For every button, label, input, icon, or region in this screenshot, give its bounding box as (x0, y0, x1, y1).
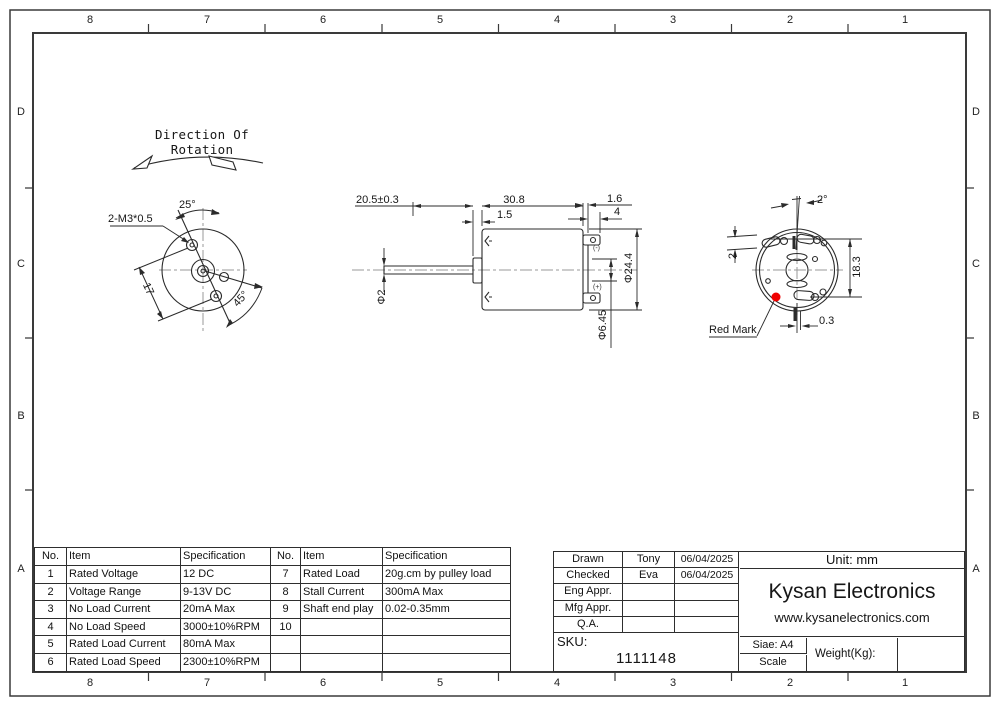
spec-table: No. Item Specification No. Item Specific… (34, 547, 511, 672)
dim-tilt-angle: 2° (817, 194, 828, 206)
spec-cell (301, 636, 383, 654)
approval-date (675, 584, 739, 600)
spec-cell (383, 636, 510, 654)
approval-label: Drawn (554, 552, 623, 568)
spec-cell: 20mA Max (181, 601, 271, 619)
zone-col-bottom-8: 8 (82, 677, 98, 691)
rotation-heading: Direction Of Rotation (124, 127, 280, 157)
zone-row-right-c: C (968, 258, 984, 272)
dim-rear-step: 1.6 (607, 193, 622, 205)
spec-cell: 2 (35, 584, 67, 602)
spec-cell: Shaft end play (301, 601, 383, 619)
dim-shaft-length: 20.5±0.3 (356, 194, 399, 206)
front-outline (162, 210, 262, 323)
rear-view-drawing (709, 196, 862, 337)
spec-cell: 3 (35, 601, 67, 619)
approval-label: Checked (554, 568, 623, 584)
spec-cell: 1 (35, 566, 67, 584)
size-cell: Siae: A4 (740, 638, 807, 654)
spec-cell (271, 636, 301, 654)
spec-cell: 6 (35, 654, 67, 672)
sku-cell: SKU: 1111148 (554, 633, 739, 671)
angle-25-label: 25° (179, 199, 196, 211)
engineering-drawing-sheet: 8 7 6 5 4 3 2 1 8 7 6 5 4 3 2 1 D C B A … (0, 0, 1000, 707)
spec-cell: 12 DC (181, 566, 271, 584)
weight-value-cell (899, 638, 964, 671)
dim-offset: 0.3 (819, 315, 834, 327)
company-cell: Kysan Electronics www.kysanelectronics.c… (740, 569, 964, 637)
spec-cell: 80mA Max (181, 636, 271, 654)
spec-header-spec: Specification (181, 548, 271, 566)
spec-cell: 8 (271, 584, 301, 602)
zone-col-bottom-7: 7 (199, 677, 215, 691)
rear-dimensions (709, 196, 862, 337)
company-name: Kysan Electronics (740, 580, 964, 604)
approval-label: Eng Appr. (554, 584, 623, 600)
title-block-right: Unit: mm Kysan Electronics www.kysanelec… (740, 552, 964, 671)
zone-col-top-6: 6 (315, 14, 331, 28)
weight-cell: Weight(Kg): (808, 638, 898, 671)
spec-cell: 300mA Max (383, 584, 510, 602)
zone-col-top-2: 2 (782, 14, 798, 28)
zone-col-top-4: 4 (549, 14, 565, 28)
zone-row-left-b: B (13, 410, 29, 424)
dim-slot-span: 18.3 (851, 250, 863, 284)
approval-label: Mfg Appr. (554, 601, 623, 617)
spec-cell: No Load Current (67, 601, 181, 619)
approval-name (623, 601, 675, 617)
sku-value: 1111148 (554, 650, 739, 667)
dim-shaft-dia: Φ2 (376, 282, 388, 312)
zone-row-left-d: D (13, 106, 29, 120)
dim-terminal-length: 4 (614, 206, 620, 218)
spec-cell: 4 (35, 619, 67, 637)
spec-cell: 5 (35, 636, 67, 654)
approval-name: Eva (623, 568, 675, 584)
zone-col-top-5: 5 (432, 14, 448, 28)
positive-terminal-label: (+) (593, 284, 602, 291)
spec-cell (301, 654, 383, 672)
dim-front-step: 1.5 (497, 209, 512, 221)
approval-name (623, 617, 675, 633)
zone-row-left-a: A (13, 563, 29, 577)
spec-cell (301, 619, 383, 637)
thread-spec-label: 2-M3*0.5 (108, 213, 153, 225)
zone-row-right-d: D (968, 106, 984, 120)
zone-col-top-1: 1 (897, 14, 913, 28)
spec-cell: 9 (271, 601, 301, 619)
zone-col-top-7: 7 (199, 14, 215, 28)
approval-date (675, 601, 739, 617)
spec-header-no: No. (35, 548, 67, 566)
rotation-arrow (133, 156, 263, 170)
spec-cell: 3000±10%RPM (181, 619, 271, 637)
approval-name (623, 584, 675, 600)
red-mark-label: Red Mark (709, 324, 757, 336)
approval-label: Q.A. (554, 617, 623, 633)
company-website: www.kysanelectronics.com (740, 610, 964, 625)
negative-terminal-label: (-) (593, 245, 600, 252)
dim-slot-width: 2 (727, 246, 739, 266)
unit-cell: Unit: mm (740, 552, 964, 569)
zone-col-bottom-2: 2 (782, 677, 798, 691)
sku-label: SKU: (557, 634, 587, 649)
title-block: Drawn Tony 06/04/2025 Checked Eva 06/04/… (553, 551, 965, 672)
zone-col-top-3: 3 (665, 14, 681, 28)
zone-col-bottom-3: 3 (665, 677, 681, 691)
spec-cell: Rated Load Speed (67, 654, 181, 672)
zone-col-bottom-1: 1 (897, 677, 913, 691)
approval-date (675, 617, 739, 633)
zone-col-top-8: 8 (82, 14, 98, 28)
spec-cell: Stall Current (301, 584, 383, 602)
approval-date: 06/04/2025 (675, 552, 739, 568)
zone-col-bottom-4: 4 (549, 677, 565, 691)
zone-col-bottom-6: 6 (315, 677, 331, 691)
spec-cell (383, 654, 510, 672)
spec-cell: Rated Voltage (67, 566, 181, 584)
spec-cell: Voltage Range (67, 584, 181, 602)
spec-header-spec: Specification (383, 548, 510, 566)
spec-cell: 20g.cm by pulley load (383, 566, 510, 584)
spec-cell: 10 (271, 619, 301, 637)
spec-header-no: No. (271, 548, 301, 566)
spec-cell: 7 (271, 566, 301, 584)
spec-cell (271, 654, 301, 672)
zone-row-left-c: C (13, 258, 29, 272)
dim-body-dia: Φ24.4 (623, 246, 635, 290)
dim-terminal-span: Φ6.45 (597, 303, 609, 347)
spec-header-item: Item (301, 548, 383, 566)
approval-grid: Drawn Tony 06/04/2025 Checked Eva 06/04/… (554, 552, 738, 633)
zone-row-right-a: A (968, 563, 984, 577)
spec-cell: 0.02-0.35mm (383, 601, 510, 619)
spec-cell: 9-13V DC (181, 584, 271, 602)
spec-cell: Rated Load Current (67, 636, 181, 654)
title-block-left: Drawn Tony 06/04/2025 Checked Eva 06/04/… (554, 552, 739, 671)
zone-col-bottom-5: 5 (432, 677, 448, 691)
dim-body-length: 30.8 (496, 194, 532, 206)
size-scale-weight-row: Siae: A4 Scale Weight(Kg): (740, 638, 964, 671)
approval-name: Tony (623, 552, 675, 568)
zone-row-right-b: B (968, 410, 984, 424)
approval-date: 06/04/2025 (675, 568, 739, 584)
spec-header-item: Item (67, 548, 181, 566)
spec-cell: No Load Speed (67, 619, 181, 637)
spec-cell: 2300±10%RPM (181, 654, 271, 672)
scale-cell: Scale (740, 655, 807, 671)
spec-cell: Rated Load (301, 566, 383, 584)
spec-cell (383, 619, 510, 637)
red-mark-dot (772, 293, 781, 302)
